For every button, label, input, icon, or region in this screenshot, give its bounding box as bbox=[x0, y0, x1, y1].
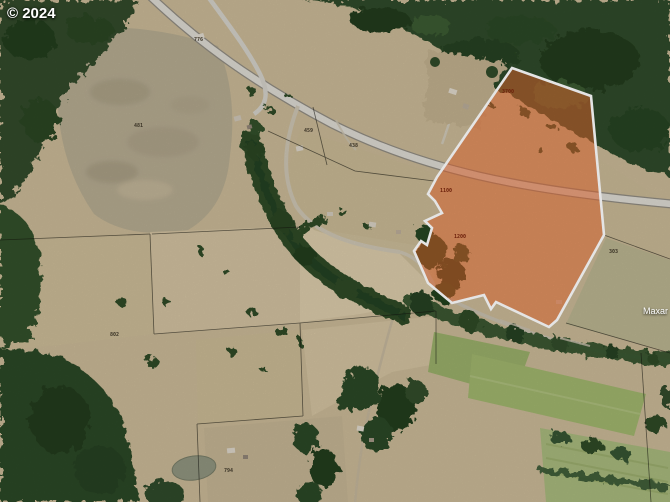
map-canvas[interactable]: 776 481 459 438 3700 1100 1200 303 802 7… bbox=[0, 0, 670, 502]
parcel-number-label: 1200 bbox=[454, 235, 466, 240]
parcel-number-label: 776 bbox=[194, 38, 203, 43]
imagery-grain bbox=[0, 0, 670, 502]
parcel-number-label: 802 bbox=[110, 333, 119, 338]
copyright-watermark: © 2024 bbox=[7, 5, 56, 22]
parcel-number-label: 481 bbox=[134, 124, 143, 129]
parcel-number-label: 3700 bbox=[502, 90, 514, 95]
parcel-number-label: 1100 bbox=[440, 189, 452, 194]
aerial-imagery bbox=[0, 0, 670, 502]
imagery-provider-watermark: Maxar bbox=[643, 306, 668, 316]
parcel-number-label: 794 bbox=[224, 469, 233, 474]
parcel-number-label: 303 bbox=[609, 250, 618, 255]
parcel-number-label: 438 bbox=[349, 144, 358, 149]
parcel-number-label: 459 bbox=[304, 129, 313, 134]
